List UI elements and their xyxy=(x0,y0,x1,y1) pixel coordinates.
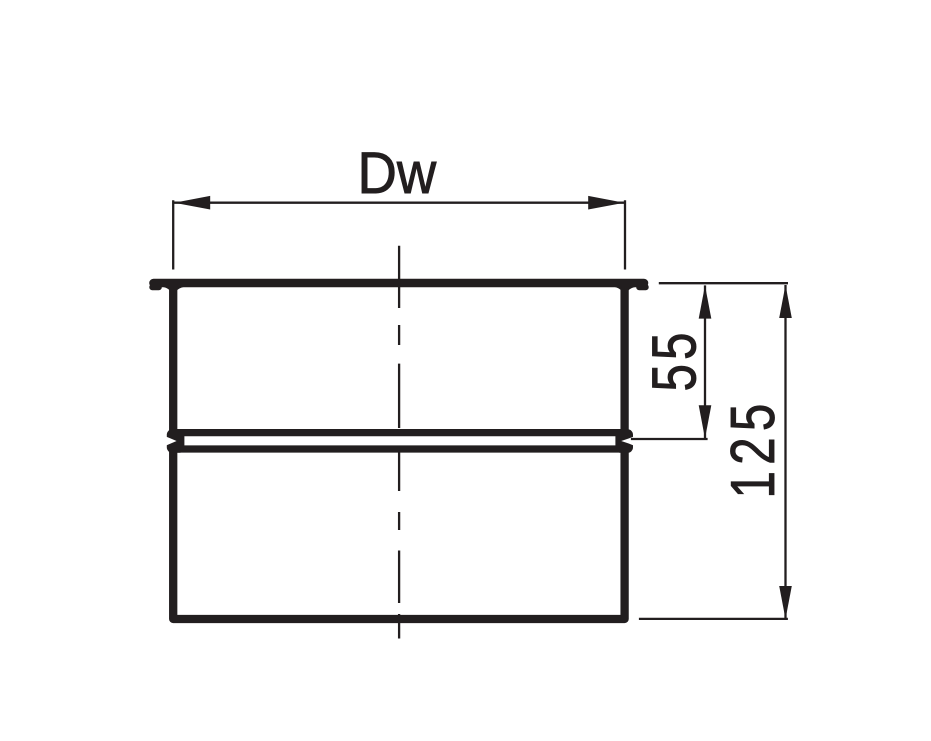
svg-text:55: 55 xyxy=(639,329,709,392)
svg-text:Dw: Dw xyxy=(358,140,437,205)
svg-text:125: 125 xyxy=(718,397,788,498)
